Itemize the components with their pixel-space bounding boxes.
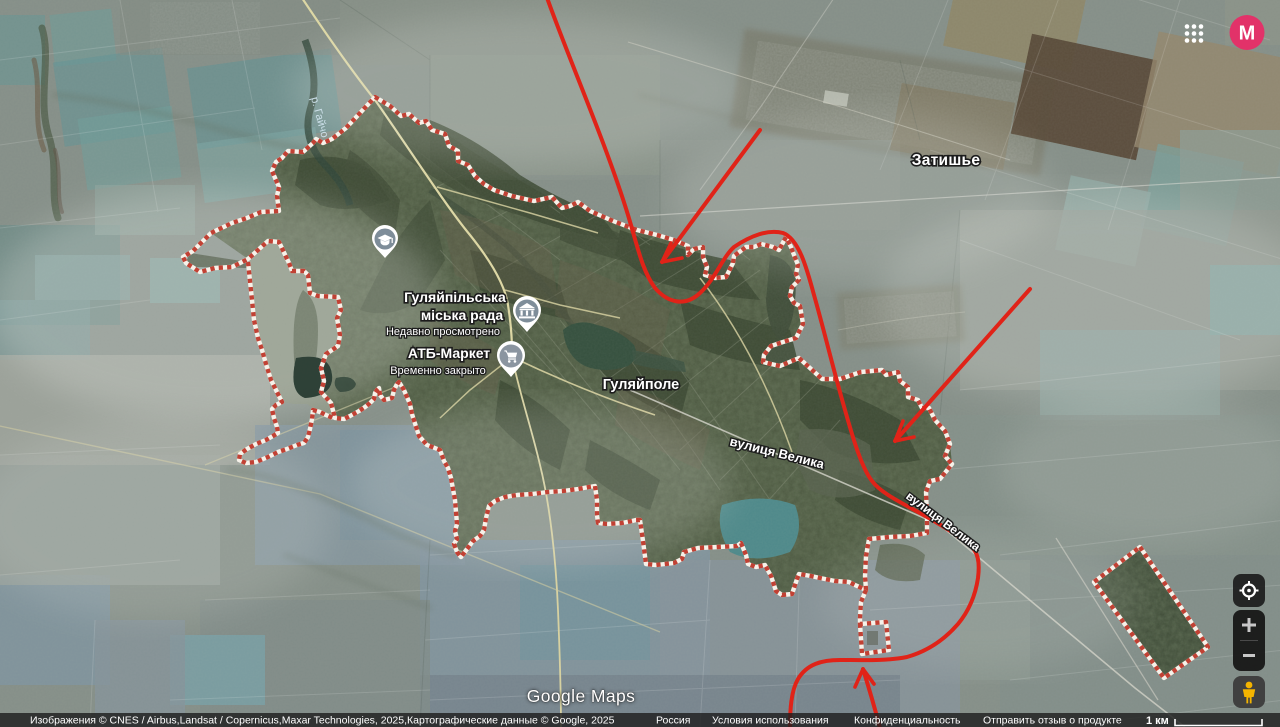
svg-text:Условия использования: Условия использования xyxy=(712,715,829,727)
svg-text:Россия: Россия xyxy=(656,715,690,727)
svg-text:1 км: 1 км xyxy=(1146,715,1169,727)
svg-text:Google Maps: Google Maps xyxy=(527,686,636,706)
svg-text:Отправить отзыв о продукте: Отправить отзыв о продукте xyxy=(983,715,1122,727)
svg-text:Гуляйпільська: Гуляйпільська xyxy=(404,289,506,305)
svg-text:Затишье: Затишье xyxy=(912,152,981,169)
svg-text:M: M xyxy=(1239,23,1256,45)
svg-text:АТБ-Маркет: АТБ-Маркет xyxy=(408,345,490,361)
svg-text:Недавно просмотрено: Недавно просмотрено xyxy=(386,326,500,338)
svg-text:Изображения © CNES / Airbus,La: Изображения © CNES / Airbus,Landsat / Co… xyxy=(30,715,615,727)
svg-text:міська рада: міська рада xyxy=(421,307,504,323)
svg-text:Конфиденциальность: Конфиденциальность xyxy=(854,715,961,727)
svg-text:Гуляйполе: Гуляйполе xyxy=(603,377,679,393)
svg-text:Временно закрыто: Временно закрыто xyxy=(390,365,486,377)
